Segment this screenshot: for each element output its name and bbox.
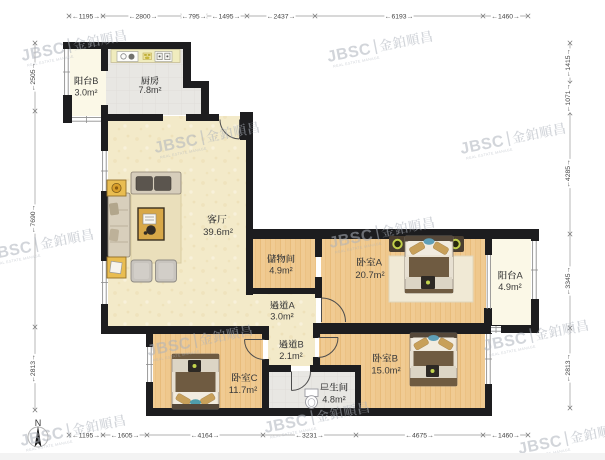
svg-text:4.8m²: 4.8m² bbox=[322, 394, 346, 404]
svg-text:A: A bbox=[376, 258, 383, 269]
svg-text:←1460→: ←1460→ bbox=[491, 13, 520, 20]
svg-text:←2813→: ←2813→ bbox=[30, 354, 37, 383]
svg-text:4.9m²: 4.9m² bbox=[498, 282, 522, 292]
svg-text:C: C bbox=[251, 373, 258, 384]
svg-text:B: B bbox=[392, 354, 398, 365]
svg-text:11.7m²: 11.7m² bbox=[229, 384, 257, 395]
svg-text:B: B bbox=[92, 76, 98, 86]
svg-text:A: A bbox=[289, 299, 296, 310]
svg-text:3.0m²: 3.0m² bbox=[74, 88, 97, 98]
svg-text:←4164→: ←4164→ bbox=[191, 432, 220, 439]
svg-text:7.8m²: 7.8m² bbox=[138, 85, 161, 95]
svg-text:A: A bbox=[517, 269, 524, 280]
svg-text:←1071→: ←1071→ bbox=[565, 84, 572, 113]
svg-text:39.6m²: 39.6m² bbox=[203, 227, 234, 238]
svg-text:←7690→: ←7690→ bbox=[30, 205, 37, 234]
svg-text:←2437→: ←2437→ bbox=[267, 13, 296, 20]
svg-text:←1195→: ←1195→ bbox=[72, 13, 100, 20]
svg-text:←4285→: ←4285→ bbox=[565, 159, 572, 188]
svg-text:20.7m²: 20.7m² bbox=[355, 269, 384, 280]
svg-text:3.0m²: 3.0m² bbox=[270, 311, 294, 321]
svg-text:←1605→: ←1605→ bbox=[111, 432, 140, 439]
svg-text:B: B bbox=[298, 338, 304, 349]
svg-text:←3345→: ←3345→ bbox=[565, 267, 572, 296]
svg-text:←2505→: ←2505→ bbox=[30, 63, 37, 92]
svg-text:←6193→: ←6193→ bbox=[385, 13, 414, 20]
svg-text:←1460→: ←1460→ bbox=[491, 432, 520, 439]
svg-text:←1495→: ←1495→ bbox=[212, 13, 241, 20]
svg-text:←2800→: ←2800→ bbox=[129, 13, 158, 20]
svg-text:←1415→: ←1415→ bbox=[565, 49, 572, 78]
svg-text:2.1m²: 2.1m² bbox=[279, 351, 303, 361]
svg-text:15.0m²: 15.0m² bbox=[371, 364, 400, 375]
svg-text:N: N bbox=[35, 418, 42, 428]
svg-text:←795→: ←795→ bbox=[182, 13, 207, 20]
svg-text:←4675→: ←4675→ bbox=[405, 432, 434, 439]
svg-text:4.9m²: 4.9m² bbox=[269, 265, 293, 275]
svg-text:←2813→: ←2813→ bbox=[565, 354, 572, 383]
svg-text:←1195→: ←1195→ bbox=[72, 432, 100, 439]
